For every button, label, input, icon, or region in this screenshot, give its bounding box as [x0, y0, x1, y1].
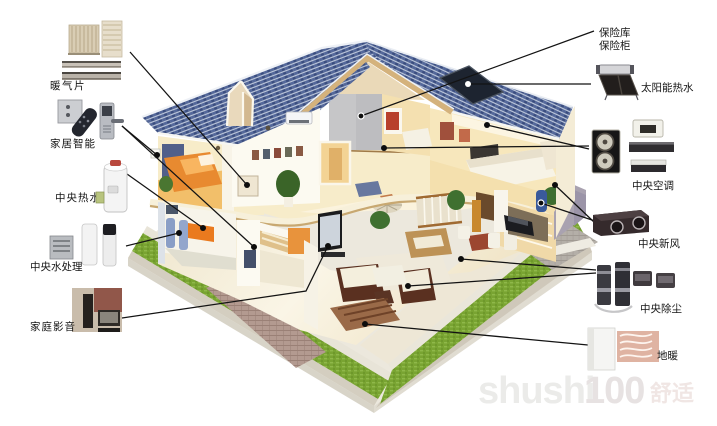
svg-text:舒适: 舒适 [650, 381, 694, 406]
svg-text:中央热水: 中央热水 [55, 191, 101, 204]
svg-text:家居智能: 家居智能 [50, 137, 96, 150]
svg-text:保险柜: 保险柜 [599, 39, 631, 52]
svg-text:太阳能热水: 太阳能热水 [641, 81, 694, 94]
svg-text:家庭影音: 家庭影音 [30, 320, 76, 333]
svg-text:地暖: 地暖 [657, 349, 678, 362]
svg-text:保险库: 保险库 [599, 26, 631, 39]
svg-text:100: 100 [584, 370, 644, 412]
svg-text:中央空调: 中央空调 [632, 179, 674, 192]
svg-text:shushi: shushi [478, 370, 594, 412]
svg-text:中央新风: 中央新风 [638, 237, 680, 250]
svg-text:暖气片: 暖气片 [50, 79, 86, 92]
svg-text:中央水处理: 中央水处理 [30, 260, 83, 273]
svg-text:中央除尘: 中央除尘 [640, 302, 682, 315]
